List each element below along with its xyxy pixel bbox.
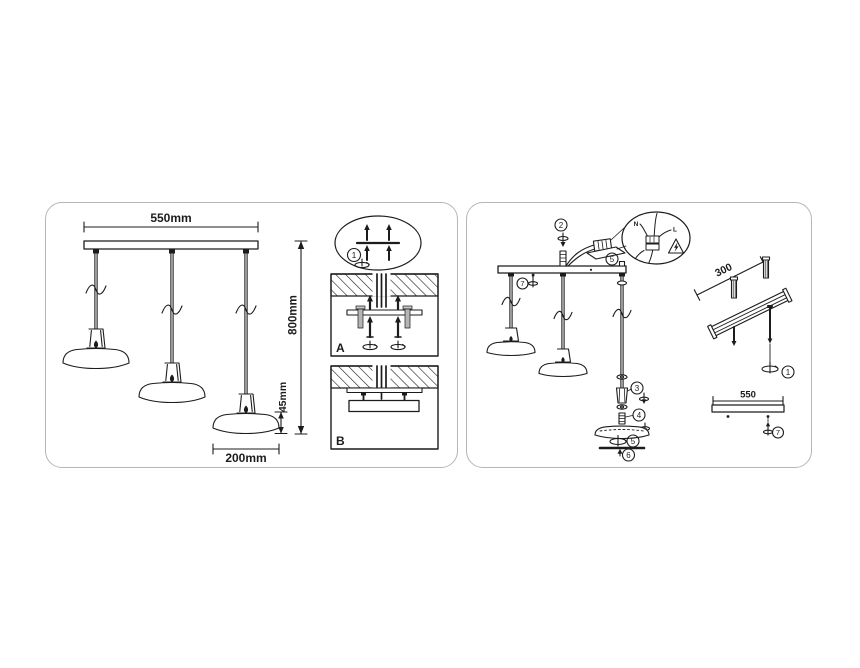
assembled-pendants (487, 276, 587, 377)
assembly-drawing: 2 (467, 203, 810, 466)
wall-anchor (356, 306, 365, 309)
pendant-lamp-2 (139, 363, 205, 403)
callout-6-diffuser: 6 (626, 451, 631, 460)
washer-ring (617, 405, 627, 409)
step-a-label: A (336, 341, 345, 355)
pendant-lamp-3 (213, 394, 279, 434)
ceiling-bar-plan (712, 405, 784, 412)
pendant-lamp-1 (63, 329, 129, 369)
pendant-lamp-1 (487, 328, 535, 356)
dimension-drawing: 550mm (46, 203, 456, 466)
terminal-block-step: 5 (566, 228, 626, 266)
callout-5-shade: 5 (631, 437, 636, 446)
exploded-pendant: 3 4 (595, 262, 650, 462)
wall-anchor (763, 257, 770, 278)
detail-callout-number: 1 (352, 250, 357, 260)
wall-anchor (731, 277, 738, 298)
callout-7-bar-screw: 7 (776, 428, 780, 437)
mounting-step-b: B (331, 365, 438, 449)
callout-5-terminal: 5 (610, 255, 615, 264)
wire-live-label: L (673, 227, 677, 234)
ceiling-bar (84, 241, 258, 249)
bracket-detail-bubble: 1 (335, 216, 421, 270)
canopy-screw-step: 7 (517, 274, 538, 289)
hanger-screw-step: 2 (555, 219, 568, 266)
pendant-lamp-2 (539, 349, 587, 377)
step-b-label: B (336, 434, 345, 448)
wire-neutral-label: N (634, 221, 639, 228)
washer-ring (618, 281, 627, 285)
threaded-stud (560, 251, 566, 266)
callout-2: 2 (559, 221, 564, 230)
washer-ring (617, 375, 627, 379)
wiring-detail-bubble: N L (622, 212, 690, 264)
callout-4-nipple: 4 (637, 411, 642, 420)
wall-anchor (403, 306, 412, 309)
mounting-step-a: A (331, 273, 438, 356)
dim-drop-height-label: 800mm (288, 295, 300, 335)
mounting-rail-detail: 300 (694, 257, 794, 378)
cord-grip-cone (617, 388, 628, 403)
dim-bar-length-label: 550 (740, 390, 756, 401)
ceiling-bar (498, 266, 626, 273)
shade-dome (595, 426, 649, 438)
dim-shade-diameter-label: 200mm (225, 451, 266, 465)
bar-drilling-detail: 550 7 (712, 390, 784, 439)
canopy-bar (349, 401, 419, 412)
dimension-drop-height (295, 241, 307, 434)
dim-shade-height-label: 45mm (277, 382, 289, 412)
electric-shock-warning-icon (669, 239, 684, 253)
dim-bar-width-label: 550mm (150, 211, 191, 225)
dimensions-panel: 550mm (45, 202, 458, 468)
callout-1-mounting-screw: 1 (786, 368, 791, 377)
callout-3-cord-grip: 3 (635, 384, 640, 393)
callout-7-canopy: 7 (520, 279, 524, 288)
assembly-panel: 2 (466, 202, 812, 468)
